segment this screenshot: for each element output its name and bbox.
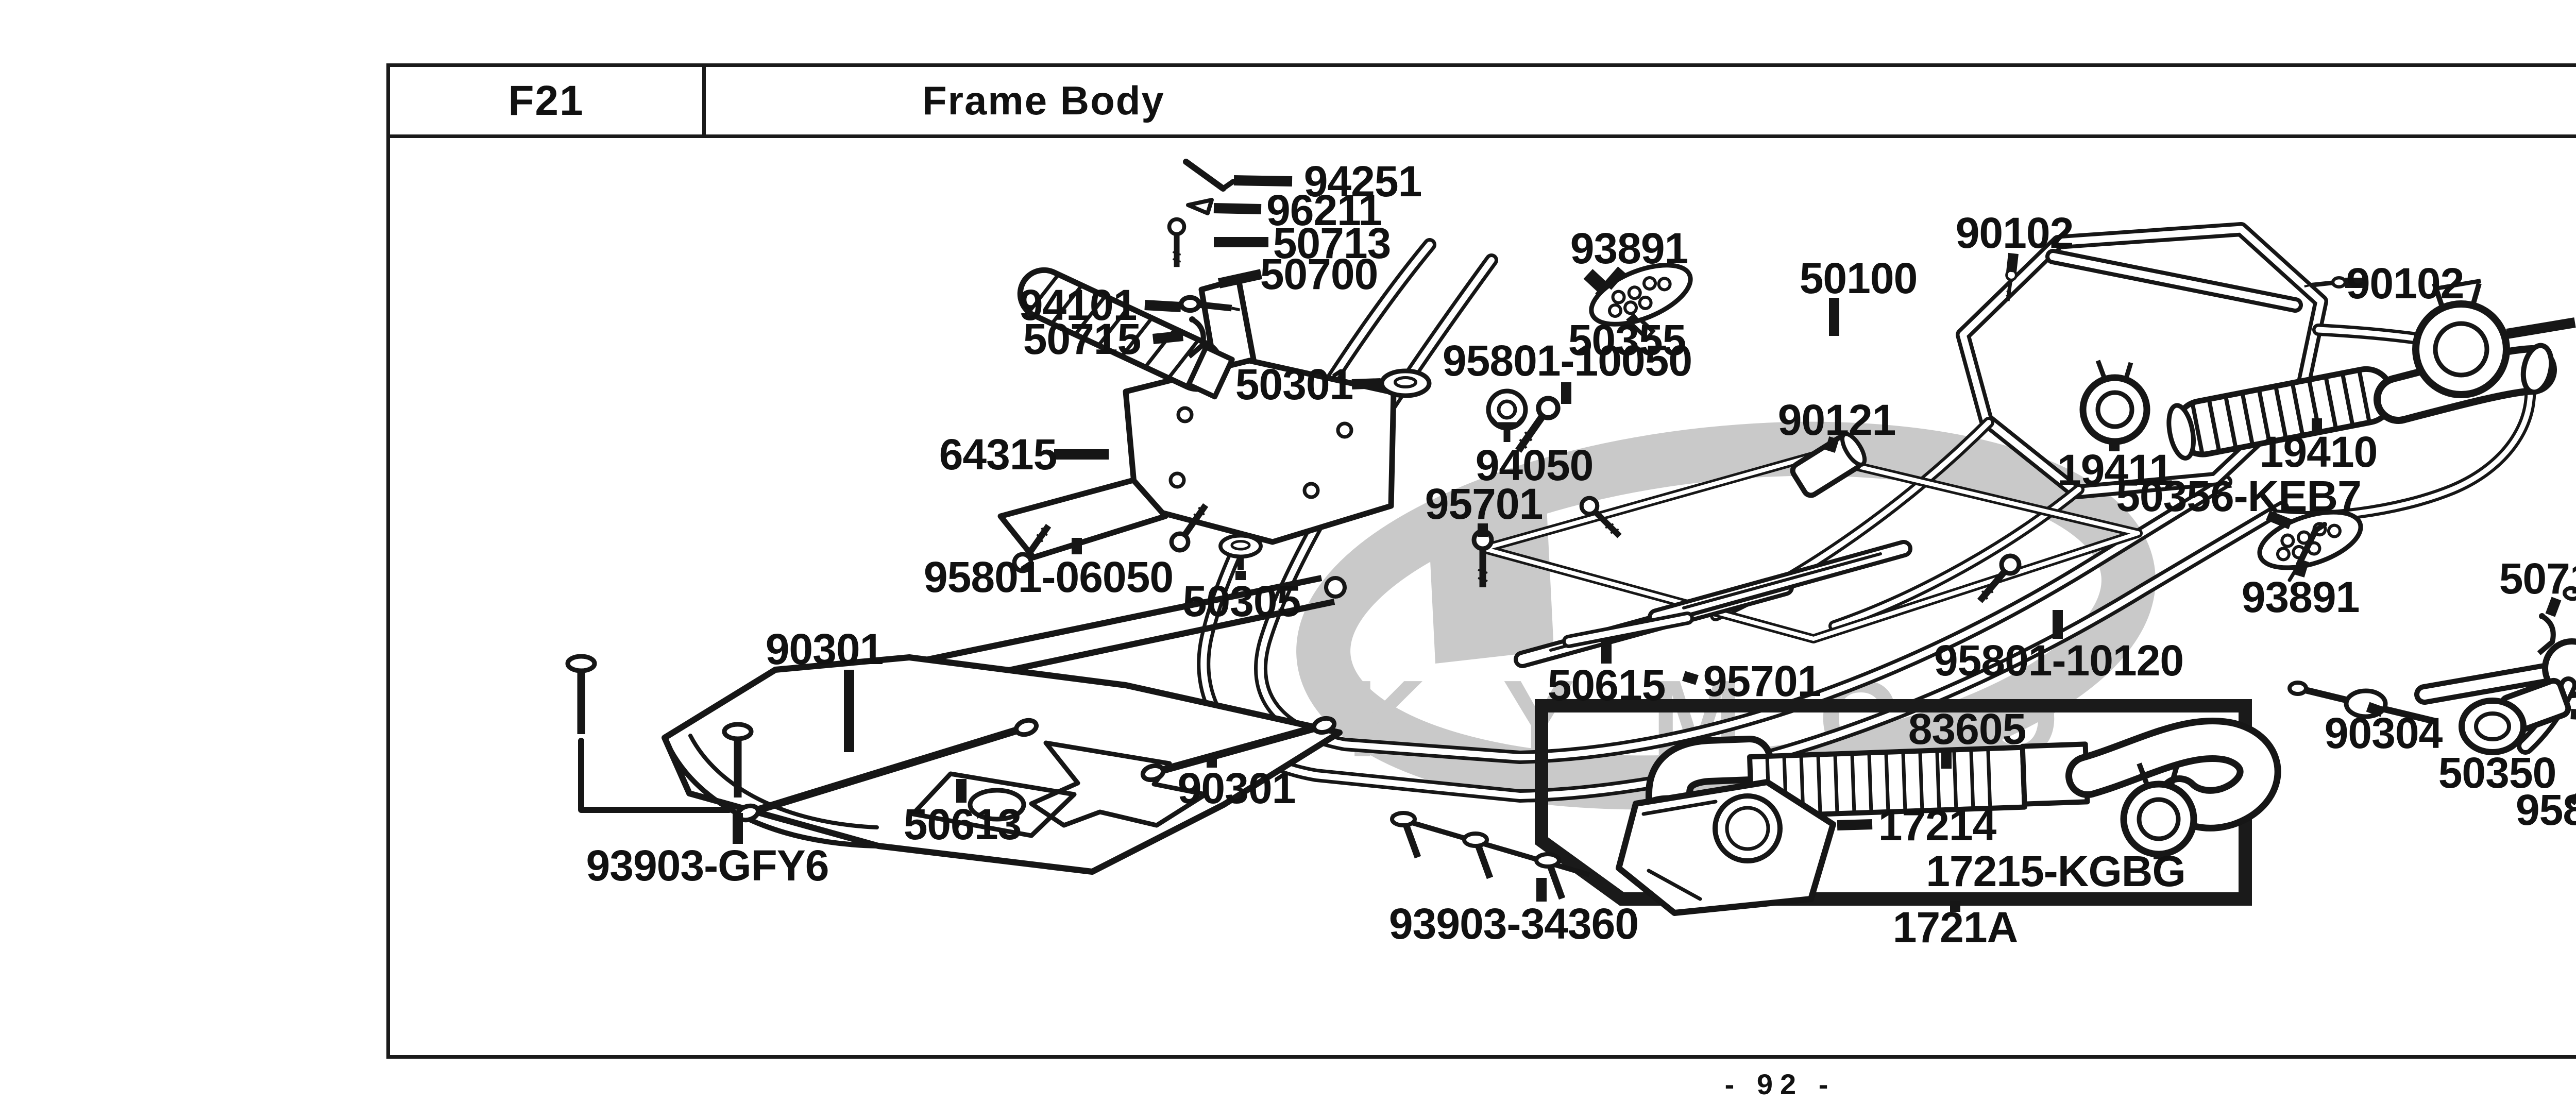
exploded-parts-diagram: KYMCO xyxy=(0,0,2576,1120)
part-label-50715: 50715 xyxy=(2499,554,2576,603)
part-label-93903-GFY6: 93903-GFY6 xyxy=(586,841,829,890)
part-label-50305: 50305 xyxy=(1183,577,1301,625)
leader-line-50301 xyxy=(1352,383,1381,384)
pin-94251-icon xyxy=(1186,162,1223,189)
rivet-96211-icon xyxy=(1188,200,1212,213)
leader-line-17215-KNBN xyxy=(2507,323,2575,334)
part-label-90102: 90102 xyxy=(2346,259,2464,308)
clamp-19411-icon xyxy=(2083,361,2147,442)
part-label-90304: 90304 xyxy=(2325,709,2443,757)
leader-line-17214 xyxy=(1837,824,1872,825)
leader-line-95701 xyxy=(1684,676,1697,680)
part-label-50301: 50301 xyxy=(1235,360,1353,409)
part-label-17215-KGBG: 17215-KGBG xyxy=(1926,847,2185,895)
part-label-50356-KEB7: 50356-KEB7 xyxy=(2116,472,2361,520)
part-label-64315: 64315 xyxy=(939,430,1057,479)
leader-line-50700 xyxy=(1219,274,1261,283)
grommet-50301-icon xyxy=(1382,371,1429,396)
part-label-90121: 90121 xyxy=(1778,396,1896,444)
part-label-93891: 93891 xyxy=(2242,573,2360,621)
part-label-50700: 50700 xyxy=(1260,250,1378,298)
leader-line-96211 xyxy=(1214,208,1261,209)
part-label-50715: 50715 xyxy=(1023,315,1141,363)
part-label-83605: 83605 xyxy=(1908,705,2026,753)
part-label-90102: 90102 xyxy=(1956,209,2074,257)
part-label-95801-10095: 95801-10095 xyxy=(2516,786,2576,834)
part-label-90301: 90301 xyxy=(1178,764,1296,812)
flange-bolt-94050-icon xyxy=(1488,391,1526,428)
part-label-1721A: 1721A xyxy=(1893,903,2018,952)
part-label-93891: 93891 xyxy=(1570,224,1688,273)
leader-line-94101 xyxy=(1145,305,1181,307)
part-label-50100: 50100 xyxy=(1800,254,1918,302)
part-label-93903-34360: 93903-34360 xyxy=(1389,900,1638,948)
catalog-page: { "header": { "code": "F21", "title": "F… xyxy=(0,0,2576,1120)
part-label-95801-10120: 95801-10120 xyxy=(1934,636,2183,685)
part-label-90301: 90301 xyxy=(766,625,884,673)
leader-line-50357 xyxy=(2571,714,2576,716)
part-label-19410: 19410 xyxy=(2260,428,2378,476)
part-label-50615: 50615 xyxy=(1548,661,1666,709)
part-label-95701: 95701 xyxy=(1425,480,1543,528)
leader-line-94251 xyxy=(1234,180,1292,181)
part-label-50613: 50613 xyxy=(904,800,1022,849)
part-label-95701: 95701 xyxy=(1703,657,1821,705)
leader-line-50715 xyxy=(1153,336,1183,339)
grommet-50305-icon xyxy=(1221,536,1261,557)
part-label-17214: 17214 xyxy=(1878,801,1997,850)
part-label-95801-10050: 95801-10050 xyxy=(1443,336,1692,385)
part-label-95801-06050: 95801-06050 xyxy=(924,553,1173,601)
bolt-50713-icon xyxy=(1170,219,1184,267)
